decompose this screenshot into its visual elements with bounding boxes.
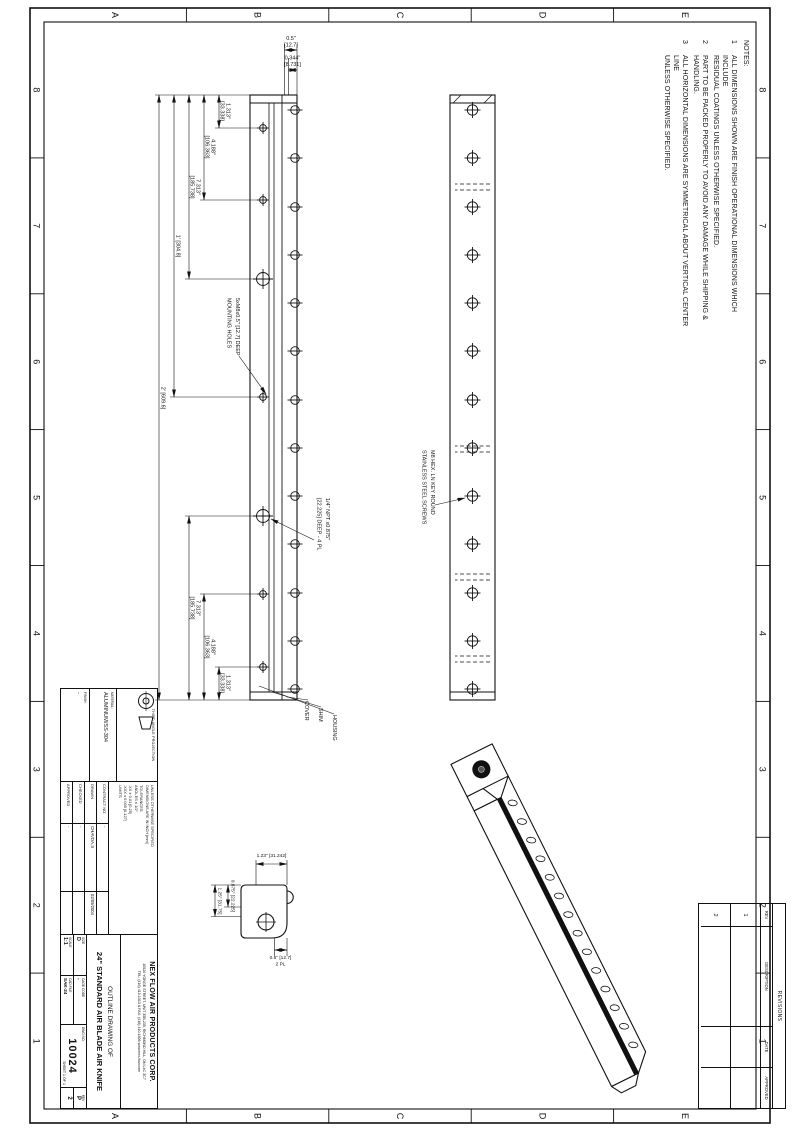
note-line: ALL DIMENSIONS SHOWN ARE FINISH OPERATIO… xyxy=(720,55,738,335)
rev-label: REV xyxy=(81,1090,85,1106)
rev-bottom-value: 2 xyxy=(66,1096,72,1099)
zone-row: A xyxy=(110,1113,120,1119)
title-block: THIRD ANGLE PROJECTION MATERIAL: ALUMINU… xyxy=(60,688,158,1109)
zone-col: 1 xyxy=(32,1039,42,1044)
drawing-page: 8 7 6 5 4 3 2 1 8 7 6 5 4 3 2 1 E D C B … xyxy=(0,0,800,1131)
tolerance-line: TOLERANCES: xyxy=(139,785,144,931)
revisions-header-description: DESCRIPTION xyxy=(761,927,772,1027)
section-dim-0875: 0.875" [22.225] xyxy=(230,880,236,912)
section-dim-123: 1.23" [31.242] xyxy=(257,853,287,859)
note-item: 2 PART TO BE PACKED PROPERLY TO AVOID AN… xyxy=(691,40,709,352)
drawing-title-line2: 24" STANDARD AIR BLADE AIR KNIFE xyxy=(95,935,104,1108)
material-value: ALUMINUM/SS-304 xyxy=(102,692,108,778)
rev-cells: REV P 2 xyxy=(61,1088,86,1108)
screws-callout-line1: M8 HEX. LN KEY ROUND xyxy=(429,450,435,515)
cage-code-value: - xyxy=(75,978,81,980)
dim-05-mm: [12.7] xyxy=(284,43,298,49)
title-block-right: NEX FLOW AIR PRODUCTS CORP. 10520 YONGE … xyxy=(61,935,157,1108)
zone-col: 3 xyxy=(32,767,42,772)
zone-col: 5 xyxy=(758,495,768,500)
tolerance-line: LIMITS xyxy=(117,785,122,931)
signature-row: CONTRACT NO. - xyxy=(96,782,108,934)
mounting-holes-callout-line2: MOUNTING HOLES xyxy=(226,298,232,348)
section-dim-05-places: 2 PL xyxy=(276,962,286,968)
revisions-header-date: DATE xyxy=(761,1027,772,1068)
drawing-number-strip: SIZE D SCALE 1:1 CAGE CODE - CAD FILE SA… xyxy=(61,935,86,1108)
signature-date: 02/09/2004 xyxy=(85,892,96,934)
section-view xyxy=(211,860,293,956)
signature-value: - xyxy=(97,824,108,892)
dwg-no-value: 10024 xyxy=(66,1027,78,1085)
front-view-callout-text: 5xM8x0.5" [12.7] DEEP MOUNTING HOLES 1/4… xyxy=(226,298,338,741)
revisions-title: REVISIONS xyxy=(772,904,785,1108)
section-dim-05: 0.5" [12.7] xyxy=(270,955,292,961)
cage-cad-cells: CAGE CODE - CAD FILE SAK-24 xyxy=(61,976,86,1025)
zone-row: E xyxy=(680,12,690,18)
dwg-no-cell: DWG NO. 10024 SHEET 1 OF 1 xyxy=(61,1025,86,1088)
finish-value: - xyxy=(75,692,81,778)
dim-0344-in: 0.344" xyxy=(285,56,301,62)
zone-row: B xyxy=(253,1113,263,1119)
dim-7313-in: 7.313" xyxy=(195,600,201,616)
dim-7313-mm: [185.738] xyxy=(189,597,195,620)
finish-label: FINISH: xyxy=(83,692,87,778)
signature-date xyxy=(97,892,108,934)
tolerance-line: UNLESS OTHERWISE SPECIFIED xyxy=(150,785,155,931)
zone-col: 6 xyxy=(758,359,768,364)
revision-row: 2 xyxy=(701,904,730,1108)
isometric-view xyxy=(451,744,657,1096)
size-value: D xyxy=(75,937,81,941)
note-line: ALL HORIZONTAL DIMENSIONS ARE SYMMETRICA… xyxy=(671,55,689,335)
zone-col: 6 xyxy=(32,359,42,364)
note-number: 3 xyxy=(662,40,689,55)
signature-date xyxy=(73,892,84,934)
title-block-middle: UNLESS OTHERWISE SPECIFIED DIMENSIONS AR… xyxy=(61,782,157,935)
tolerance-line: .XXX ± 0.005 [0.127] xyxy=(123,785,128,931)
dim-1313-in: 1.313" xyxy=(225,103,231,119)
revision-description xyxy=(701,927,730,1027)
dim-1313-mm: [33.338] xyxy=(219,101,225,121)
company-address: 10520 YONGE STREET, UNIT 35B-235, RICHMO… xyxy=(143,935,147,1108)
size-scale-cells: SIZE D SCALE 1:1 xyxy=(61,935,86,976)
dim-12in: 1' [304.8] xyxy=(175,235,181,258)
cad-file-value: SAK-24 xyxy=(63,978,68,994)
drawing-title-line1: OUTLINE DRAWING OF xyxy=(106,935,113,1108)
cad-file-label: CAD FILE xyxy=(68,978,72,1022)
revision-rev: 2 xyxy=(701,904,730,927)
zone-row: D xyxy=(537,12,547,19)
zone-col: 8 xyxy=(758,87,768,92)
company-name: NEX FLOW AIR PRODUCTS CORP. xyxy=(148,935,155,1108)
zone-row: D xyxy=(537,1113,547,1120)
tolerance-line: ANGLES ± 1/2° xyxy=(133,785,138,931)
revision-rev: 1 xyxy=(731,904,760,927)
tolerance-line: .XX ± 0.01 [0.25] xyxy=(128,785,133,931)
dwg-no-label: DWG NO. xyxy=(81,1027,85,1085)
third-angle-projection-icon xyxy=(135,689,157,733)
rev-top-value: P xyxy=(75,1096,81,1100)
signature-row: DRAWN CHAVDA.S 02/09/2004 xyxy=(84,782,96,934)
size-label: SIZE xyxy=(81,937,85,973)
revisions-header-approved: APPROVED xyxy=(761,1068,772,1108)
company-phone: TEL: (416) 410-1313 & FAX: (416) 410-180… xyxy=(137,935,141,1108)
dim-7313-in: 7.313" xyxy=(195,179,201,195)
note-item: 3 ALL HORIZONTAL DIMENSIONS ARE SYMMETRI… xyxy=(662,40,689,352)
signature-value: CHAVDA.S xyxy=(85,824,96,892)
npt-callout-line2: [22.225] DEEP - 4 PL xyxy=(316,498,322,551)
dim-4188-in: 4.188" xyxy=(210,639,216,655)
projection-cell: THIRD ANGLE PROJECTION xyxy=(116,689,157,781)
signature-row: APPROVED - xyxy=(61,782,72,934)
revision-approved xyxy=(731,1068,760,1108)
revisions-header-row: REV DESCRIPTION DATE APPROVED xyxy=(760,904,772,1108)
zone-col: 2 xyxy=(32,903,42,908)
zone-row: E xyxy=(680,1113,690,1119)
finish-cell: FINISH: - xyxy=(61,689,89,781)
signature-label: DRAWN xyxy=(85,782,96,824)
dim-4188-in: 4.188" xyxy=(210,139,216,155)
dim-1313-in: 1.313" xyxy=(225,675,231,691)
note-line: RESIDUAL COATINGS UNLESS OTHERWISE SPECI… xyxy=(711,55,720,335)
sheet-of-cell: SHEET 1 OF 1 xyxy=(62,1061,66,1085)
dim-1313-mm: [33.338] xyxy=(219,673,225,693)
zone-col: 7 xyxy=(32,223,42,228)
front-view xyxy=(155,44,334,714)
zone-col: 3 xyxy=(758,767,768,772)
signature-date xyxy=(61,892,72,934)
sheet-label: SHEET xyxy=(62,1061,66,1073)
revision-row: 1 xyxy=(730,904,760,1108)
front-view-dimension-text: 1.313" [33.338] 1.313" [33.338] 4.188" [… xyxy=(160,36,302,693)
zone-row: C xyxy=(395,12,405,19)
material-cell: MATERIAL: ALUMINUM/SS-304 xyxy=(89,689,117,781)
title-block-left: THIRD ANGLE PROJECTION MATERIAL: ALUMINU… xyxy=(61,689,157,782)
signature-row: CHECKED - xyxy=(72,782,84,934)
scale-label: SCALE xyxy=(68,937,72,973)
company-cell: NEX FLOW AIR PRODUCTS CORP. 10520 YONGE … xyxy=(121,935,158,1108)
signature-label: APPROVED xyxy=(61,782,72,824)
zone-row: C xyxy=(395,1113,405,1120)
revision-approved xyxy=(701,1068,730,1108)
dim-4188-mm: [106.363] xyxy=(204,136,210,159)
side-view xyxy=(435,95,495,700)
dim-7313-mm: [185.738] xyxy=(189,176,195,199)
note-text: ALL HORIZONTAL DIMENSIONS ARE SYMMETRICA… xyxy=(662,55,689,335)
zone-row: A xyxy=(110,12,120,18)
signature-value: - xyxy=(61,824,72,892)
note-line: PART TO BE PACKED PROPERLY TO AVOID ANY … xyxy=(691,55,709,335)
zone-col: 8 xyxy=(32,87,42,92)
material-label: MATERIAL: xyxy=(110,692,114,778)
zone-col: 7 xyxy=(758,223,768,228)
cage-code-label: CAGE CODE xyxy=(81,978,85,1022)
dim-05-in: 0.5" xyxy=(286,36,296,42)
shim-label: SHIM xyxy=(317,708,323,722)
notes-heading: NOTES: xyxy=(741,40,750,352)
tolerance-line: DIMENSIONS ARE IN INCH [mm] xyxy=(144,785,149,931)
signature-label: CHECKED xyxy=(73,782,84,824)
zone-col: 4 xyxy=(758,631,768,636)
note-text: PART TO BE PACKED PROPERLY TO AVOID ANY … xyxy=(691,55,709,335)
note-text: ALL DIMENSIONS SHOWN ARE FINISH OPERATIO… xyxy=(711,55,738,335)
housing-label: HOUSING xyxy=(331,715,337,741)
section-view-dimension-text: 1.23" [31.242] 0.875" [22.225] 1.25" [31… xyxy=(217,853,292,968)
note-item: 1 ALL DIMENSIONS SHOWN ARE FINISH OPERAT… xyxy=(711,40,738,352)
note-number: 1 xyxy=(711,40,738,55)
note-number: 2 xyxy=(691,40,709,55)
screws-callout-line2: STAINLESS STEEL SCREWS xyxy=(421,450,427,525)
dim-24in: 2' [609.6] xyxy=(160,387,166,410)
cover-label: COVER xyxy=(303,701,309,721)
drawing-sheet: 8 7 6 5 4 3 2 1 8 7 6 5 4 3 2 1 E D C B … xyxy=(8,0,792,1126)
scale-value: 1:1 xyxy=(62,937,68,945)
side-view-callout: M8 HEX. LN KEY ROUND STAINLESS STEEL SCR… xyxy=(421,450,436,525)
section-dim-125: 1.25" [31.75] xyxy=(217,887,223,914)
signature-value: - xyxy=(73,824,84,892)
zone-col: 4 xyxy=(32,631,42,636)
mounting-holes-callout-line1: 5xM8x0.5" [12.7] DEEP xyxy=(234,298,240,356)
revision-date xyxy=(731,1027,760,1068)
revisions-header-rev: REV xyxy=(761,904,772,927)
revision-date xyxy=(701,1027,730,1068)
tolerance-cell: UNLESS OTHERWISE SPECIFIED DIMENSIONS AR… xyxy=(108,782,157,934)
npt-callout-line1: 1/4" NPT x0.875" xyxy=(324,498,330,540)
revisions-table: REVISIONS REV DESCRIPTION DATE APPROVED … xyxy=(698,903,786,1109)
dim-4188-mm: [106.363] xyxy=(204,636,210,659)
zone-row: B xyxy=(253,12,263,18)
notes-block: NOTES: 1 ALL DIMENSIONS SHOWN ARE FINISH… xyxy=(660,40,750,352)
dim-0344-mm: [8.731] xyxy=(284,62,301,68)
signature-label: CONTRACT NO. xyxy=(97,782,108,824)
note-line: UNLESS OTHERWISE SPECIFIED. xyxy=(662,55,671,335)
revision-description xyxy=(731,927,760,1027)
sheet-value: 1 OF 1 xyxy=(62,1074,66,1085)
drawing-title-cell: OUTLINE DRAWING OF 24" STANDARD AIR BLAD… xyxy=(86,935,121,1108)
zone-col: 5 xyxy=(32,495,42,500)
